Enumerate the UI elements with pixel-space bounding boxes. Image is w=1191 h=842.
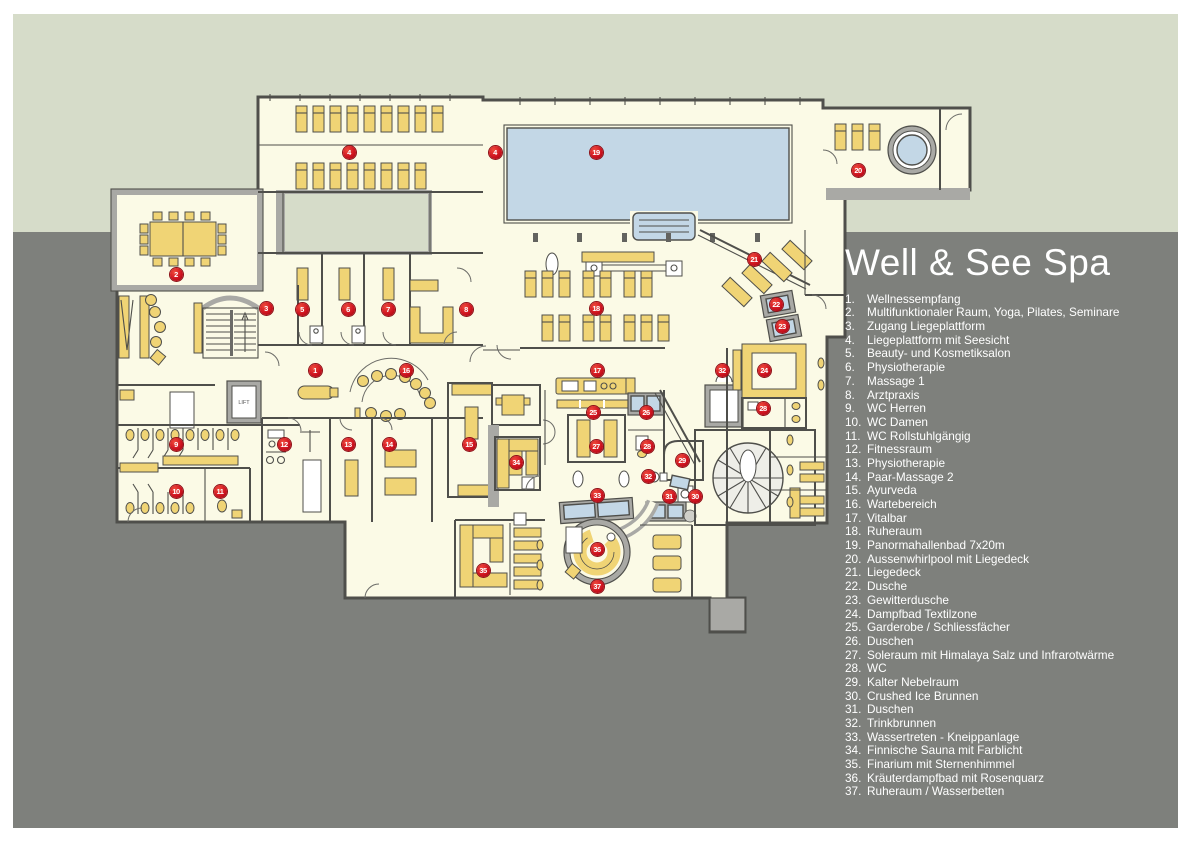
legend-item-number: 36. (845, 772, 867, 786)
legend-item-number: 34. (845, 744, 867, 758)
legend-item-number: 15. (845, 484, 867, 498)
legend-item-number: 9. (845, 402, 867, 416)
plan-marker-6: 6 (342, 303, 355, 316)
legend-item: 19.Panormahallenbad 7x20m (845, 539, 1190, 553)
plan-marker-34: 34 (510, 456, 523, 469)
legend-item: 9.WC Herren (845, 402, 1190, 416)
legend-item-label: Dusche (867, 580, 1190, 594)
kneipp-basin (564, 503, 596, 519)
legend-item-label: Kräuterdampfbad mit Rosenquarz (867, 772, 1190, 786)
couple-table (385, 450, 416, 467)
plan-marker-20: 20 (852, 164, 865, 177)
legend-item-number: 11. (845, 430, 867, 444)
ayurveda-table (465, 407, 478, 439)
legend-item-number: 24. (845, 608, 867, 622)
plan-marker-33: 33 (591, 489, 604, 502)
legend-item-label: Finarium mit Sternenhimmel (867, 758, 1190, 772)
legend-item: 36.Kräuterdampfbad mit Rosenquarz (845, 772, 1190, 786)
legend-item: 13.Physiotherapie (845, 457, 1190, 471)
legend-item-number: 20. (845, 553, 867, 567)
legend-item: 28.WC (845, 662, 1190, 676)
plan-marker-11: 11 (214, 485, 227, 498)
legend-item-label: Physiotherapie (867, 457, 1190, 471)
legend-item: 31.Duschen (845, 703, 1190, 717)
legend-item: 22.Dusche (845, 580, 1190, 594)
plan-marker-13: 13 (342, 438, 355, 451)
legend-item: 32.Trinkbrunnen (845, 717, 1190, 731)
legend-item-number: 31. (845, 703, 867, 717)
plan-marker-18: 18 (590, 302, 603, 315)
legend-item-label: WC Herren (867, 402, 1190, 416)
massage-table (339, 268, 350, 300)
legend-item: 7.Massage 1 (845, 375, 1190, 389)
plan-marker-36: 36 (591, 543, 604, 556)
legend-item: 33.Wassertreten - Kneippanlage (845, 731, 1190, 745)
legend-item-label: Vitalbar (867, 512, 1190, 526)
legend-item-label: WC (867, 662, 1190, 676)
spa-floor-plan-page: LIFT (0, 0, 1191, 842)
plan-marker-26: 26 (640, 406, 653, 419)
legend-item-number: 4. (845, 334, 867, 348)
legend-item-number: 1. (845, 293, 867, 307)
legend-item-number: 5. (845, 347, 867, 361)
legend-item-label: Wellnessempfang (867, 293, 1190, 307)
legend-item-number: 32. (845, 717, 867, 731)
legend-item-number: 7. (845, 375, 867, 389)
legend-item-label: Massage 1 (867, 375, 1190, 389)
plan-marker-14: 14 (383, 438, 396, 451)
legend-item: 23.Gewitterdusche (845, 594, 1190, 608)
legend-item-label: Liegedeck (867, 566, 1190, 580)
physio-table (345, 460, 358, 496)
wc-sink-counter (120, 463, 158, 472)
legend-item: 34.Finnische Sauna mit Farblicht (845, 744, 1190, 758)
plan-marker-2: 2 (170, 268, 183, 281)
legend-item: 35.Finarium mit Sternenhimmel (845, 758, 1190, 772)
exterior-stair-tab (710, 598, 745, 631)
plan-marker-4: 4 (489, 146, 502, 159)
legend-item-label: Duschen (867, 635, 1190, 649)
legend-item-label: Arztpraxis (867, 389, 1190, 403)
legend-item-label: Wartebereich (867, 498, 1190, 512)
plan-marker-37: 37 (591, 580, 604, 593)
legend-item-label: Garderobe / Schliessfächer (867, 621, 1190, 635)
legend-item-label: WC Rollstuhlgängig (867, 430, 1190, 444)
reception-desk (298, 386, 334, 399)
legend-item: 10.WC Damen (845, 416, 1190, 430)
legend-item: 27.Soleraum mit Himalaya Salz und Infrar… (845, 649, 1190, 663)
legend-item-number: 23. (845, 594, 867, 608)
legend-item: 11.WC Rollstuhlgängig (845, 430, 1190, 444)
plan-marker-31: 31 (663, 490, 676, 503)
legend-item-label: Ayurveda (867, 484, 1190, 498)
plan-marker-19: 19 (590, 146, 603, 159)
legend-item: 12.Fitnessraum (845, 443, 1190, 457)
legend-item-number: 10. (845, 416, 867, 430)
legend-item: 18.Ruheraum (845, 525, 1190, 539)
plan-marker-1: 1 (309, 364, 322, 377)
plan-marker-24: 24 (758, 364, 771, 377)
legend-list: 1.Wellnessempfang2.Multifunktionaler Rau… (845, 293, 1190, 799)
fitness-bench (303, 460, 321, 512)
legend-item-label: Aussenwhirlpool mit Liegedeck (867, 553, 1190, 567)
legend-item-number: 8. (845, 389, 867, 403)
legend-item: 14.Paar-Massage 2 (845, 471, 1190, 485)
plan-marker-35: 35 (477, 564, 490, 577)
legend-item-number: 14. (845, 471, 867, 485)
plan-marker-10: 10 (170, 485, 183, 498)
legend-item: 5.Beauty- und Kosmetiksalon (845, 347, 1190, 361)
couple-table (385, 478, 416, 495)
plan-marker-3: 3 (260, 302, 273, 315)
legend-item-label: Kalter Nebelraum (867, 676, 1190, 690)
massage-table (383, 268, 394, 300)
room-multifunctional (111, 189, 263, 291)
plan-marker-28: 28 (641, 440, 654, 453)
legend-item-label: Multifunktionaler Raum, Yoga, Pilates, S… (867, 306, 1190, 320)
legend-item-label: Soleraum mit Himalaya Salz und Infrarotw… (867, 649, 1190, 663)
terrace-gap (276, 190, 430, 255)
legend-item-label: Physiotherapie (867, 361, 1190, 375)
legend-item: 15.Ayurveda (845, 484, 1190, 498)
legend-item-label: Finnische Sauna mit Farblicht (867, 744, 1190, 758)
legend-item-number: 12. (845, 443, 867, 457)
plan-marker-21: 21 (748, 253, 761, 266)
plan-marker-4: 4 (343, 146, 356, 159)
legend-item: 1.Wellnessempfang (845, 293, 1190, 307)
legend-item-number: 35. (845, 758, 867, 772)
legend-item-number: 22. (845, 580, 867, 594)
legend-item-number: 37. (845, 785, 867, 799)
legend-item-number: 17. (845, 512, 867, 526)
legend-item-number: 30. (845, 690, 867, 704)
legend-item-number: 16. (845, 498, 867, 512)
legend-item-number: 2. (845, 306, 867, 320)
legend-item: 25.Garderobe / Schliessfächer (845, 621, 1190, 635)
legend-item-label: Duschen (867, 703, 1190, 717)
legend-item-label: Wassertreten - Kneippanlage (867, 731, 1190, 745)
plan-marker-16: 16 (400, 364, 413, 377)
legend-item-label: Panormahallenbad 7x20m (867, 539, 1190, 553)
legend-title: Well & See Spa (845, 243, 1190, 284)
legend-item-number: 19. (845, 539, 867, 553)
plan-marker-29: 29 (676, 454, 689, 467)
elevator-lift: LIFT (227, 381, 261, 423)
legend-item-label: Dampfbad Textilzone (867, 608, 1190, 622)
legend-item-number: 13. (845, 457, 867, 471)
legend-item-label: Liegeplattform mit Seesicht (867, 334, 1190, 348)
plan-marker-17: 17 (591, 364, 604, 377)
plan-marker-23: 23 (776, 320, 789, 333)
plan-marker-5: 5 (296, 303, 309, 316)
plan-marker-25: 25 (587, 406, 600, 419)
legend-item: 2.Multifunktionaler Raum, Yoga, Pilates,… (845, 306, 1190, 320)
legend-item-label: Paar-Massage 2 (867, 471, 1190, 485)
legend-item: 6.Physiotherapie (845, 361, 1190, 375)
legend-item-label: Beauty- und Kosmetiksalon (867, 347, 1190, 361)
legend-item-label: Trinkbrunnen (867, 717, 1190, 731)
legend-item-label: Fitnessraum (867, 443, 1190, 457)
legend-item-number: 6. (845, 361, 867, 375)
legend-item-label: Ruheraum / Wasserbetten (867, 785, 1190, 799)
legend-item-number: 18. (845, 525, 867, 539)
legend-item: 20.Aussenwhirlpool mit Liegedeck (845, 553, 1190, 567)
legend-item: 21.Liegedeck (845, 566, 1190, 580)
legend-item: 8.Arztpraxis (845, 389, 1190, 403)
plan-marker-27: 27 (590, 440, 603, 453)
legend-item: 16.Wartebereich (845, 498, 1190, 512)
legend-item-label: Zugang Liegeplattform (867, 320, 1190, 334)
legend-item-number: 25. (845, 621, 867, 635)
legend-item-label: Ruheraum (867, 525, 1190, 539)
plan-marker-30: 30 (689, 490, 702, 503)
legend-item-label: Gewitterdusche (867, 594, 1190, 608)
plan-marker-32: 32 (642, 470, 655, 483)
lift-label: LIFT (238, 400, 250, 406)
plan-marker-28: 28 (757, 402, 770, 415)
legend-item-number: 21. (845, 566, 867, 580)
legend-item-number: 28. (845, 662, 867, 676)
legend-item-number: 27. (845, 649, 867, 663)
legend-item-label: WC Damen (867, 416, 1190, 430)
kneipp-basin (597, 501, 629, 517)
legend-item: 37.Ruheraum / Wasserbetten (845, 785, 1190, 799)
plan-marker-12: 12 (278, 438, 291, 451)
legend-item-number: 3. (845, 320, 867, 334)
plan-marker-22: 22 (770, 298, 783, 311)
legend-item: 4.Liegeplattform mit Seesicht (845, 334, 1190, 348)
legend-item: 30.Crushed Ice Brunnen (845, 690, 1190, 704)
legend-item: 24.Dampfbad Textilzone (845, 608, 1190, 622)
legend-panel: Well & See Spa 1.Wellnessempfang2.Multif… (845, 243, 1190, 799)
legend-item: 29.Kalter Nebelraum (845, 676, 1190, 690)
indoor-pool (507, 128, 789, 220)
plan-marker-8: 8 (460, 303, 473, 316)
wc-sink-counter (163, 456, 238, 465)
plan-marker-15: 15 (463, 438, 476, 451)
plan-marker-32: 32 (716, 364, 729, 377)
legend-item-label: Crushed Ice Brunnen (867, 690, 1190, 704)
legend-item: 17.Vitalbar (845, 512, 1190, 526)
legend-item: 26.Duschen (845, 635, 1190, 649)
legend-item: 3.Zugang Liegeplattform (845, 320, 1190, 334)
legend-item-number: 29. (845, 676, 867, 690)
legend-item-number: 26. (845, 635, 867, 649)
plan-marker-9: 9 (170, 438, 183, 451)
legend-item-number: 33. (845, 731, 867, 745)
plan-marker-7: 7 (382, 303, 395, 316)
